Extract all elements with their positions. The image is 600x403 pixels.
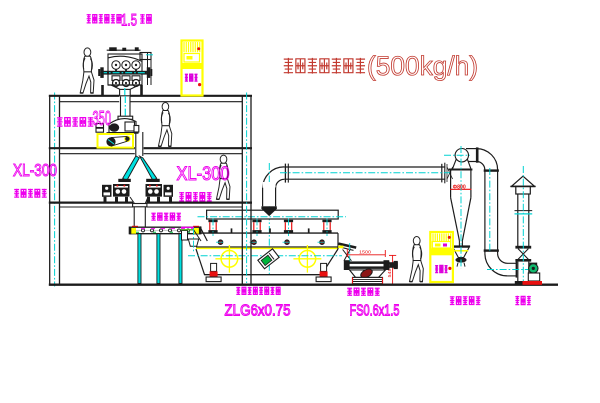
svg-text:1500: 1500 — [359, 249, 371, 255]
svg-text:ZLG6x0.75: ZLG6x0.75 — [225, 303, 291, 320]
svg-text:Φ800: Φ800 — [453, 184, 466, 190]
svg-text:1.5: 1.5 — [121, 11, 137, 30]
svg-text:XL-300: XL-300 — [13, 160, 57, 180]
svg-text:XL-300: XL-300 — [177, 164, 230, 185]
svg-text:(500kg/h): (500kg/h) — [367, 51, 478, 81]
svg-text:FS0.6x1.5: FS0.6x1.5 — [350, 303, 400, 320]
svg-text:350: 350 — [93, 107, 112, 130]
